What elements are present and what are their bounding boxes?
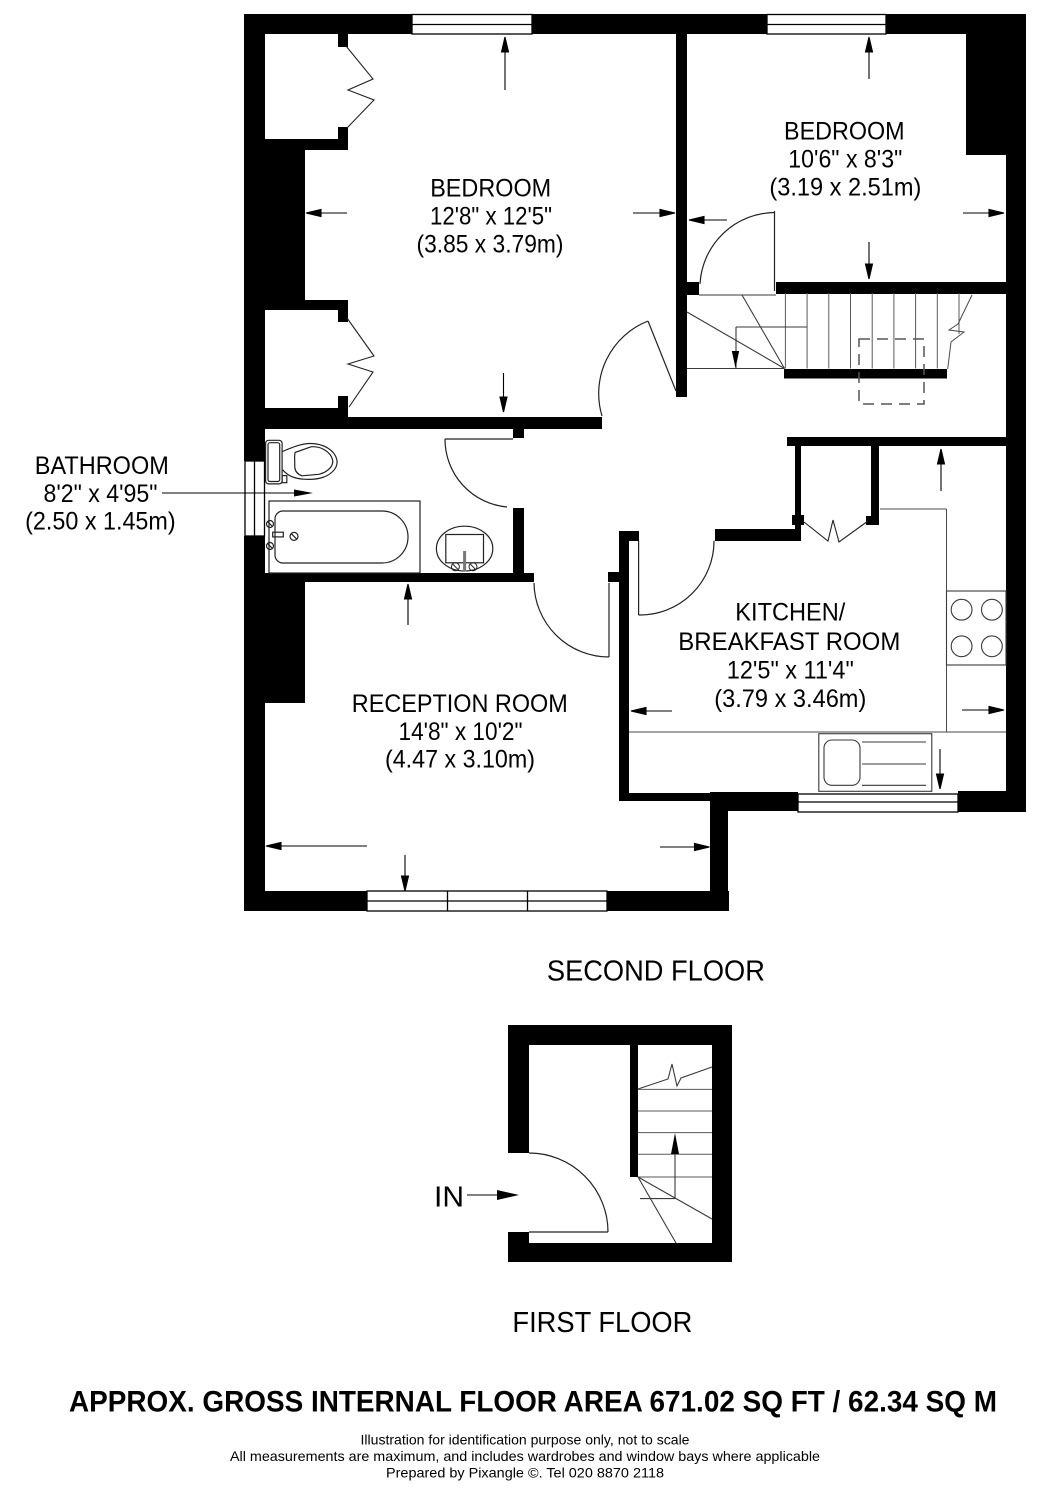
svg-text:SECOND FLOOR: SECOND FLOOR bbox=[547, 956, 765, 988]
svg-text:KITCHEN/: KITCHEN/ bbox=[735, 599, 845, 627]
svg-text:IN: IN bbox=[434, 1182, 464, 1214]
svg-text:10'6" x 8'3": 10'6" x 8'3" bbox=[788, 146, 902, 174]
svg-text:14'8" x 10'2": 14'8" x 10'2" bbox=[399, 718, 523, 746]
svg-text:(3.19 x 2.51m): (3.19 x 2.51m) bbox=[769, 174, 921, 202]
svg-text:All measurements are maximum,: All measurements are maximum, and includ… bbox=[230, 1448, 820, 1464]
svg-text:8'2" x 4'95": 8'2" x 4'95" bbox=[44, 480, 158, 508]
svg-text:(3.79 x 3.46m): (3.79 x 3.46m) bbox=[714, 685, 866, 713]
svg-text:APPROX. GROSS INTERNAL FLOOR A: APPROX. GROSS INTERNAL FLOOR AREA 671.02… bbox=[69, 1386, 997, 1419]
svg-text:(4.47 x 3.10m): (4.47 x 3.10m) bbox=[385, 746, 535, 774]
svg-text:12'5" x 11'4": 12'5" x 11'4" bbox=[727, 657, 854, 685]
svg-text:12'8" x 12'5": 12'8" x 12'5" bbox=[430, 203, 552, 231]
svg-text:FIRST FLOOR: FIRST FLOOR bbox=[512, 1307, 692, 1339]
svg-text:BREAKFAST ROOM: BREAKFAST ROOM bbox=[678, 628, 900, 656]
svg-text:Prepared by Pixangle ©. Tel 02: Prepared by Pixangle ©. Tel 020 8870 211… bbox=[386, 1465, 664, 1481]
svg-text:(3.85 x 3.79m): (3.85 x 3.79m) bbox=[417, 231, 564, 259]
svg-text:RECEPTION ROOM: RECEPTION ROOM bbox=[352, 690, 568, 718]
svg-text:Illustration for identificatio: Illustration for identification purpose … bbox=[361, 1432, 690, 1448]
svg-text:(2.50 x 1.45m): (2.50 x 1.45m) bbox=[25, 508, 176, 536]
svg-text:BEDROOM: BEDROOM bbox=[784, 118, 905, 146]
svg-text:BEDROOM: BEDROOM bbox=[430, 175, 551, 203]
svg-text:BATHROOM: BATHROOM bbox=[35, 452, 169, 480]
